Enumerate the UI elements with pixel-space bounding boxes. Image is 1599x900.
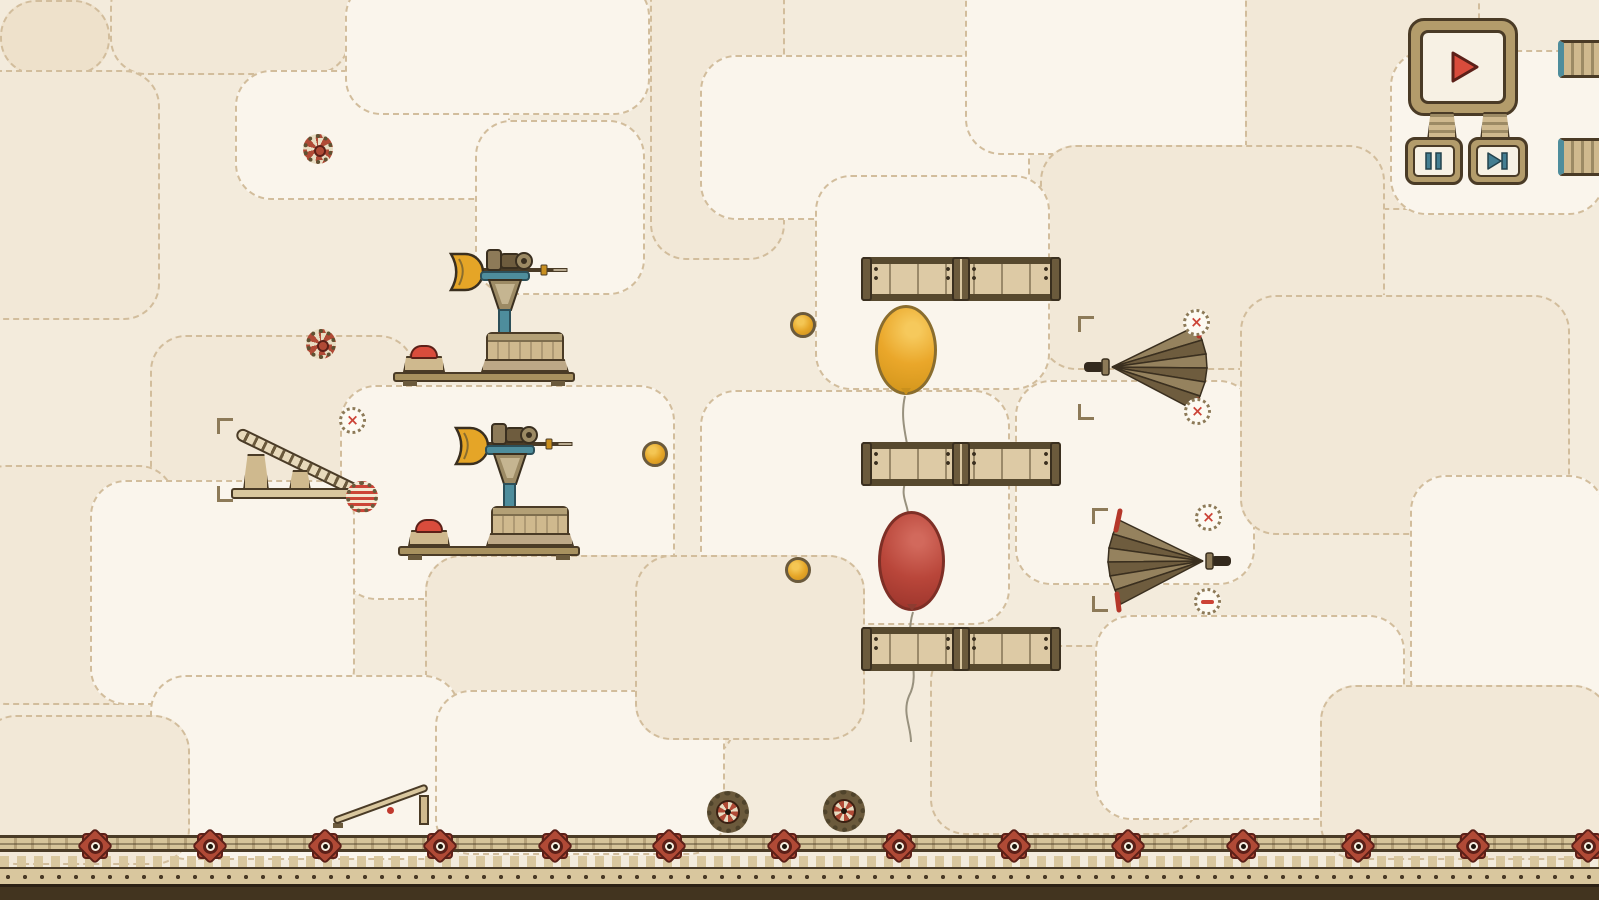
plank-joint	[952, 257, 970, 301]
launcher-pedestal	[486, 332, 564, 372]
x-marker[interactable]: ×	[1195, 504, 1222, 531]
pipe	[1558, 40, 1599, 78]
x-marker[interactable]: ×	[339, 407, 366, 434]
plank[interactable]	[863, 627, 1059, 671]
plank-cap	[1050, 442, 1061, 486]
plank-joint	[952, 442, 970, 486]
game-canvas: × × × ×	[0, 0, 1599, 900]
ramp-post	[419, 795, 429, 825]
ground-gear	[1224, 827, 1262, 865]
fabric-patch	[345, 0, 650, 115]
pivot-dot	[387, 807, 394, 814]
plank-cap	[861, 627, 872, 671]
ground-gear	[76, 827, 114, 865]
pipe-neck	[1427, 112, 1457, 140]
selection-bracket-icon	[217, 418, 233, 434]
plank-cap	[861, 442, 872, 486]
trigger-button[interactable]	[415, 519, 443, 533]
x-marker[interactable]: ×	[1183, 309, 1210, 336]
pause-button[interactable]	[1405, 137, 1463, 185]
ground-gear	[1109, 827, 1147, 865]
skip-button[interactable]	[1468, 137, 1528, 185]
pipe-neck	[1480, 112, 1510, 140]
coin	[785, 557, 811, 583]
fabric-patch	[965, 0, 1280, 155]
launcher-platform	[393, 372, 575, 382]
x-icon: ×	[1202, 510, 1215, 525]
play-icon	[1443, 47, 1483, 87]
plank-cap	[861, 257, 872, 301]
ramp-bar	[332, 783, 429, 825]
ground-gear	[1339, 827, 1377, 865]
ground-gear	[536, 827, 574, 865]
play-button[interactable]	[1408, 18, 1518, 116]
minus-icon	[1201, 600, 1214, 604]
ground-base	[0, 884, 1599, 900]
fabric-patch	[110, 0, 350, 75]
folded-umbrella[interactable]: ×	[1092, 502, 1237, 630]
fabric-patch	[0, 70, 160, 320]
crossbow-with-dart-icon	[434, 422, 584, 517]
x-icon: ×	[346, 413, 359, 428]
plank-cap	[1050, 627, 1061, 671]
red-balloon[interactable]	[878, 511, 945, 611]
selection-bracket-icon	[1078, 316, 1094, 332]
ground-gear	[650, 827, 688, 865]
plank[interactable]	[863, 257, 1059, 301]
x-icon: ×	[1190, 315, 1203, 330]
fabric-patch	[0, 0, 110, 75]
small-ramp[interactable]	[333, 783, 438, 831]
ground-gear	[880, 827, 918, 865]
drive-wheel-icon	[346, 481, 378, 513]
ground-riveted-band	[0, 867, 1599, 884]
minus-marker[interactable]	[1194, 588, 1221, 615]
coin	[790, 312, 816, 338]
selection-bracket-icon	[1078, 404, 1094, 420]
gear-icon	[306, 329, 336, 359]
ground-gear	[306, 827, 344, 865]
pipe	[1558, 138, 1599, 176]
fabric-patch	[635, 555, 865, 740]
plank[interactable]	[863, 442, 1059, 486]
cart-wheel[interactable]	[823, 790, 865, 832]
fabric-patch	[1410, 475, 1599, 715]
ramp-base	[231, 488, 359, 499]
ground-gear	[191, 827, 229, 865]
x-marker[interactable]: ×	[1184, 398, 1211, 425]
ground-gear	[765, 827, 803, 865]
ground-gear	[1569, 827, 1599, 865]
folded-umbrella[interactable]: × ×	[1078, 308, 1223, 436]
launcher-pedestal	[491, 506, 569, 546]
coin	[642, 441, 668, 467]
plank-joint	[952, 627, 970, 671]
selection-bracket-icon	[1092, 596, 1108, 612]
conveyor-ramp[interactable]: ×	[215, 398, 400, 523]
yellow-balloon[interactable]	[875, 305, 937, 395]
dart-launcher[interactable]	[393, 246, 583, 386]
selection-bracket-icon	[217, 486, 233, 502]
dart-launcher[interactable]	[398, 420, 588, 560]
ramp-support	[243, 454, 269, 490]
x-icon: ×	[1191, 404, 1204, 419]
pause-icon	[1422, 151, 1446, 171]
ground-gear	[421, 827, 459, 865]
gear-icon	[303, 134, 333, 164]
ground-gear	[1454, 827, 1492, 865]
selection-bracket-icon	[1092, 508, 1108, 524]
playback-controls	[1400, 12, 1599, 192]
ground-gear	[995, 827, 1033, 865]
plank-cap	[1050, 257, 1061, 301]
cart-wheel[interactable]	[707, 791, 749, 833]
launcher-platform	[398, 546, 580, 556]
trigger-button[interactable]	[410, 345, 438, 359]
skip-next-icon	[1485, 151, 1511, 171]
crossbow-with-dart-icon	[429, 248, 579, 343]
